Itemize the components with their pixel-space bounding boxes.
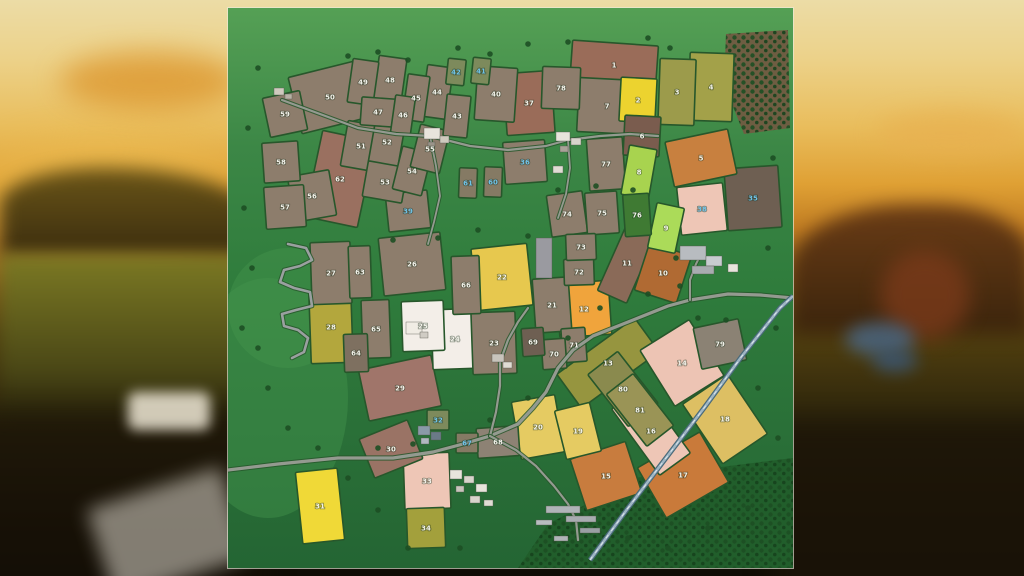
building-30 bbox=[580, 528, 600, 533]
building-23 bbox=[476, 484, 487, 492]
field-label-74: 74 bbox=[562, 210, 572, 218]
tree-37 bbox=[745, 505, 751, 511]
building-19 bbox=[431, 432, 441, 440]
field-label-41: 41 bbox=[476, 67, 486, 75]
map-panel: 1234567891011121314151617181920212223242… bbox=[228, 8, 793, 568]
field-label-16: 16 bbox=[646, 427, 656, 435]
tree-16 bbox=[375, 445, 381, 451]
tree-21 bbox=[597, 305, 603, 311]
field-label-22: 22 bbox=[497, 273, 507, 281]
tree-28 bbox=[345, 475, 351, 481]
field-label-26: 26 bbox=[407, 260, 417, 268]
tree-14 bbox=[593, 183, 599, 189]
field-label-12: 12 bbox=[579, 305, 589, 313]
field-label-13: 13 bbox=[603, 359, 613, 367]
field-label-40: 40 bbox=[491, 90, 501, 98]
tree-1 bbox=[375, 49, 381, 55]
tree-45 bbox=[239, 325, 245, 331]
tree-9 bbox=[390, 237, 396, 243]
building-5 bbox=[556, 132, 570, 141]
field-label-77: 77 bbox=[601, 160, 611, 168]
field-label-52: 52 bbox=[382, 138, 392, 146]
field-label-28: 28 bbox=[326, 323, 336, 331]
field-label-27: 27 bbox=[326, 269, 336, 277]
field-label-2: 2 bbox=[636, 96, 641, 104]
field-label-68: 68 bbox=[493, 438, 503, 446]
building-29 bbox=[536, 520, 552, 525]
field-label-71: 71 bbox=[569, 341, 579, 349]
building-12 bbox=[728, 264, 738, 272]
tree-40 bbox=[625, 535, 631, 541]
field-label-62: 62 bbox=[335, 175, 345, 183]
field-label-31: 31 bbox=[315, 502, 325, 510]
field-label-69: 69 bbox=[528, 338, 538, 346]
field-label-81: 81 bbox=[635, 406, 645, 414]
field-label-3: 3 bbox=[675, 88, 680, 96]
field-label-24: 24 bbox=[450, 335, 460, 343]
building-8 bbox=[553, 166, 563, 173]
building-17 bbox=[503, 362, 512, 368]
tree-44 bbox=[249, 265, 255, 271]
tree-7 bbox=[645, 35, 651, 41]
building-26 bbox=[484, 500, 493, 506]
field-label-29: 29 bbox=[395, 384, 405, 392]
field-label-11: 11 bbox=[622, 259, 632, 267]
field-label-18: 18 bbox=[720, 415, 730, 423]
field-label-9: 9 bbox=[664, 224, 669, 232]
tree-2 bbox=[405, 57, 411, 63]
field-label-15: 15 bbox=[601, 472, 611, 480]
field-label-35: 35 bbox=[748, 194, 758, 202]
tree-46 bbox=[695, 315, 701, 321]
field-label-65: 65 bbox=[371, 325, 381, 333]
tree-35 bbox=[755, 385, 761, 391]
field-label-38: 38 bbox=[697, 205, 707, 213]
field-label-32: 32 bbox=[433, 416, 443, 424]
tree-39 bbox=[665, 545, 671, 551]
building-25 bbox=[470, 496, 480, 503]
building-15 bbox=[420, 332, 428, 338]
tree-41 bbox=[255, 65, 261, 71]
field-label-53: 53 bbox=[380, 178, 390, 186]
field-label-34: 34 bbox=[421, 524, 431, 532]
building-7 bbox=[560, 146, 568, 152]
field-label-23: 23 bbox=[489, 339, 499, 347]
farm-map-svg: 1234567891011121314151617181920212223242… bbox=[228, 8, 793, 568]
field-label-60: 60 bbox=[488, 178, 498, 186]
field-label-8: 8 bbox=[637, 168, 642, 176]
field-label-30: 30 bbox=[386, 445, 396, 453]
field-label-1: 1 bbox=[612, 61, 617, 69]
cloud-left bbox=[60, 52, 240, 110]
building-2 bbox=[424, 128, 440, 139]
tree-29 bbox=[375, 507, 381, 513]
field-label-72: 72 bbox=[574, 268, 584, 276]
building-22 bbox=[464, 476, 474, 483]
field-label-14: 14 bbox=[677, 359, 687, 367]
field-label-61: 61 bbox=[463, 179, 473, 187]
tree-43 bbox=[241, 205, 247, 211]
building-10 bbox=[706, 256, 722, 266]
field-label-17: 17 bbox=[678, 471, 688, 479]
building-21 bbox=[450, 470, 462, 479]
field-label-64: 64 bbox=[351, 349, 361, 357]
blurred-vehicle bbox=[128, 392, 210, 430]
field-label-21: 21 bbox=[547, 301, 557, 309]
tree-17 bbox=[410, 441, 416, 447]
tree-24 bbox=[265, 385, 271, 391]
blue-building-blob-2 bbox=[872, 350, 918, 372]
field-label-19: 19 bbox=[573, 427, 583, 435]
field-label-73: 73 bbox=[576, 243, 586, 251]
tree-15 bbox=[630, 187, 636, 193]
tree-5 bbox=[525, 41, 531, 47]
building-11 bbox=[692, 266, 714, 274]
field-label-46: 46 bbox=[398, 111, 408, 119]
field-label-58: 58 bbox=[276, 158, 286, 166]
building-31 bbox=[554, 536, 568, 541]
field-label-44: 44 bbox=[432, 88, 442, 96]
field-label-10: 10 bbox=[658, 269, 668, 277]
tree-30 bbox=[457, 545, 463, 551]
tree-20 bbox=[565, 335, 571, 341]
tree-19 bbox=[525, 395, 531, 401]
tree-18 bbox=[487, 417, 493, 423]
field-label-47: 47 bbox=[373, 108, 383, 116]
field-label-42: 42 bbox=[451, 68, 461, 76]
building-27 bbox=[546, 506, 580, 513]
field-label-5: 5 bbox=[699, 154, 704, 162]
tree-3 bbox=[455, 45, 461, 51]
building-1 bbox=[285, 94, 292, 99]
tree-26 bbox=[255, 345, 261, 351]
field-label-66: 66 bbox=[461, 281, 471, 289]
field-label-75: 75 bbox=[597, 209, 607, 217]
field-label-67: 67 bbox=[462, 439, 472, 447]
field-label-7: 7 bbox=[605, 102, 610, 110]
tree-38 bbox=[705, 525, 711, 531]
tree-13 bbox=[555, 187, 561, 193]
tree-23 bbox=[677, 283, 683, 289]
tree-48 bbox=[673, 255, 679, 261]
field-label-49: 49 bbox=[358, 78, 368, 86]
building-0 bbox=[274, 88, 284, 95]
tree-25 bbox=[285, 425, 291, 431]
building-3 bbox=[440, 136, 449, 143]
tree-8 bbox=[667, 45, 673, 51]
screenshot-root: 1234567891011121314151617181920212223242… bbox=[0, 0, 1024, 576]
dark-foreground-right bbox=[770, 420, 1024, 576]
field-label-54: 54 bbox=[407, 167, 417, 175]
field-label-78: 78 bbox=[556, 84, 566, 92]
field-label-4: 4 bbox=[709, 83, 714, 91]
building-6 bbox=[571, 138, 581, 145]
field-label-6: 6 bbox=[640, 132, 645, 140]
field-label-39: 39 bbox=[403, 207, 413, 215]
field-label-20: 20 bbox=[533, 423, 543, 431]
tree-12 bbox=[525, 233, 531, 239]
building-20 bbox=[421, 438, 429, 444]
tree-27 bbox=[315, 445, 321, 451]
field-label-79: 79 bbox=[715, 340, 725, 348]
tree-47 bbox=[723, 317, 729, 323]
tree-4 bbox=[487, 51, 493, 57]
field-label-51: 51 bbox=[356, 142, 366, 150]
field-label-48: 48 bbox=[385, 76, 395, 84]
tree-42 bbox=[245, 125, 251, 131]
building-24 bbox=[456, 486, 464, 492]
cloud-right bbox=[876, 112, 1024, 154]
building-18 bbox=[418, 426, 430, 435]
tree-32 bbox=[770, 155, 776, 161]
building-16 bbox=[492, 354, 504, 362]
tree-31 bbox=[405, 545, 411, 551]
tree-6 bbox=[565, 39, 571, 45]
building-28 bbox=[566, 516, 596, 522]
tree-36 bbox=[775, 435, 781, 441]
field-label-50: 50 bbox=[325, 93, 335, 101]
field-label-76: 76 bbox=[632, 211, 642, 219]
field-label-63: 63 bbox=[355, 268, 365, 276]
field-label-45: 45 bbox=[411, 94, 421, 102]
tree-11 bbox=[475, 227, 481, 233]
tree-10 bbox=[435, 235, 441, 241]
field-label-70: 70 bbox=[549, 350, 559, 358]
building-9 bbox=[680, 246, 706, 260]
field-label-36: 36 bbox=[520, 158, 530, 166]
tree-0 bbox=[345, 53, 351, 59]
field-label-56: 56 bbox=[307, 192, 317, 200]
field-label-59: 59 bbox=[280, 110, 290, 118]
tree-34 bbox=[773, 325, 779, 331]
field-label-80: 80 bbox=[618, 385, 628, 393]
tree-22 bbox=[645, 291, 651, 297]
field-label-25: 25 bbox=[418, 322, 428, 330]
field-label-43: 43 bbox=[452, 112, 462, 120]
field-label-57: 57 bbox=[280, 203, 290, 211]
field-label-33: 33 bbox=[422, 477, 432, 485]
tree-33 bbox=[765, 245, 771, 251]
building-13 bbox=[536, 238, 552, 278]
field-label-55: 55 bbox=[425, 145, 435, 153]
field-label-37: 37 bbox=[524, 99, 534, 107]
